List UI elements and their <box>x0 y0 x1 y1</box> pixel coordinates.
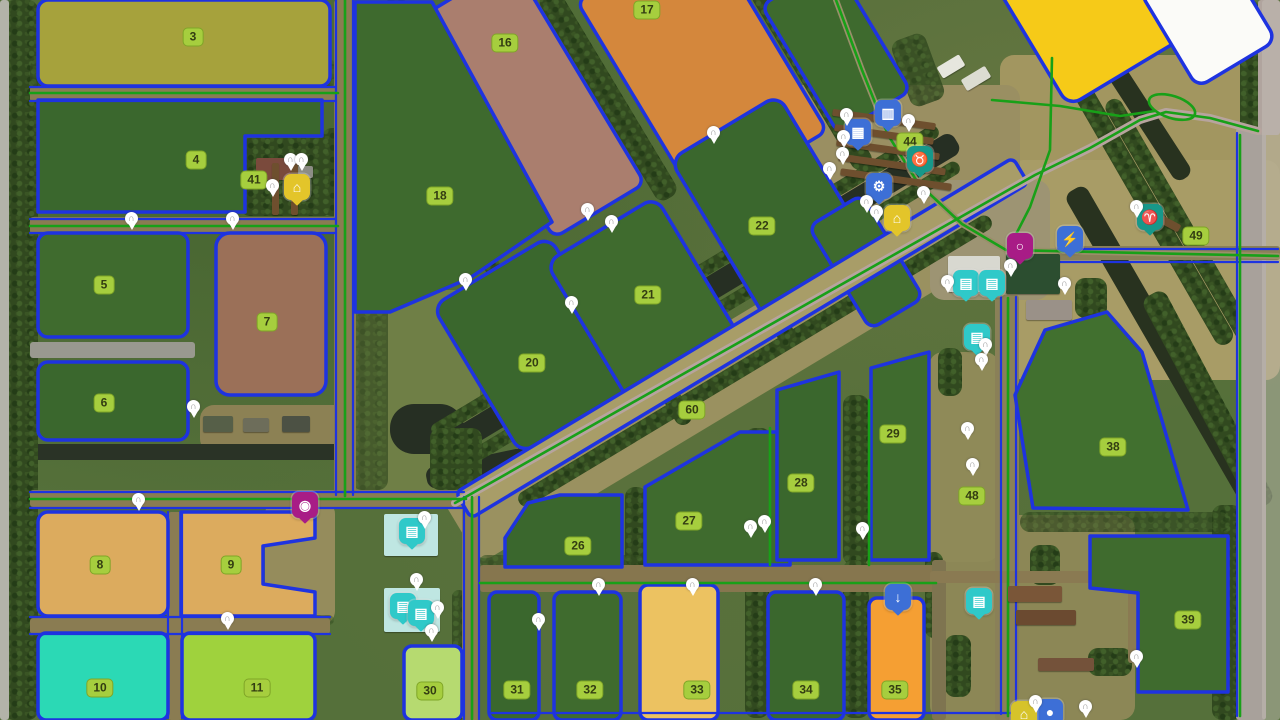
collectible-pin <box>979 338 992 351</box>
collectible-pin <box>425 624 438 637</box>
collectible-pin <box>917 186 930 199</box>
collectible-pin <box>975 353 988 366</box>
collectible-pin <box>1130 200 1143 213</box>
collectible-pin <box>226 212 239 225</box>
collectible-pin <box>418 511 431 524</box>
collectible-pin <box>295 153 308 166</box>
collectible-pin <box>1130 650 1143 663</box>
collectible-pin <box>221 612 234 625</box>
collectible-pin <box>744 520 757 533</box>
collectible-pin <box>1029 695 1042 708</box>
collectible-pin <box>902 114 915 127</box>
collectible-pin <box>809 578 822 591</box>
collectible-pin <box>132 493 145 506</box>
collectible-pin <box>707 126 720 139</box>
collectible-pin <box>459 273 472 286</box>
collectible-pin <box>1004 259 1017 272</box>
collectible-pin <box>410 573 423 586</box>
collectible-pin <box>840 108 853 121</box>
collectible-pin <box>823 162 836 175</box>
collectible-pin <box>961 422 974 435</box>
marker-pins-layer <box>0 0 1280 720</box>
collectible-pin <box>266 179 279 192</box>
collectible-pin <box>856 522 869 535</box>
collectible-pin <box>686 578 699 591</box>
collectible-pin <box>592 578 605 591</box>
collectible-pin <box>837 130 850 143</box>
collectible-pin <box>870 205 883 218</box>
collectible-pin <box>1058 277 1071 290</box>
collectible-pin <box>125 212 138 225</box>
collectible-pin <box>758 515 771 528</box>
collectible-pin <box>605 215 618 228</box>
collectible-pin <box>431 601 444 614</box>
collectible-pin <box>836 147 849 160</box>
collectible-pin <box>532 613 545 626</box>
collectible-pin <box>941 275 954 288</box>
collectible-pin <box>187 400 200 413</box>
farm-map-canvas[interactable]: 3456789101116171820212226272829303132333… <box>0 0 1280 720</box>
collectible-pin <box>581 203 594 216</box>
collectible-pin <box>1079 700 1092 713</box>
collectible-pin <box>966 458 979 471</box>
collectible-pin <box>565 296 578 309</box>
